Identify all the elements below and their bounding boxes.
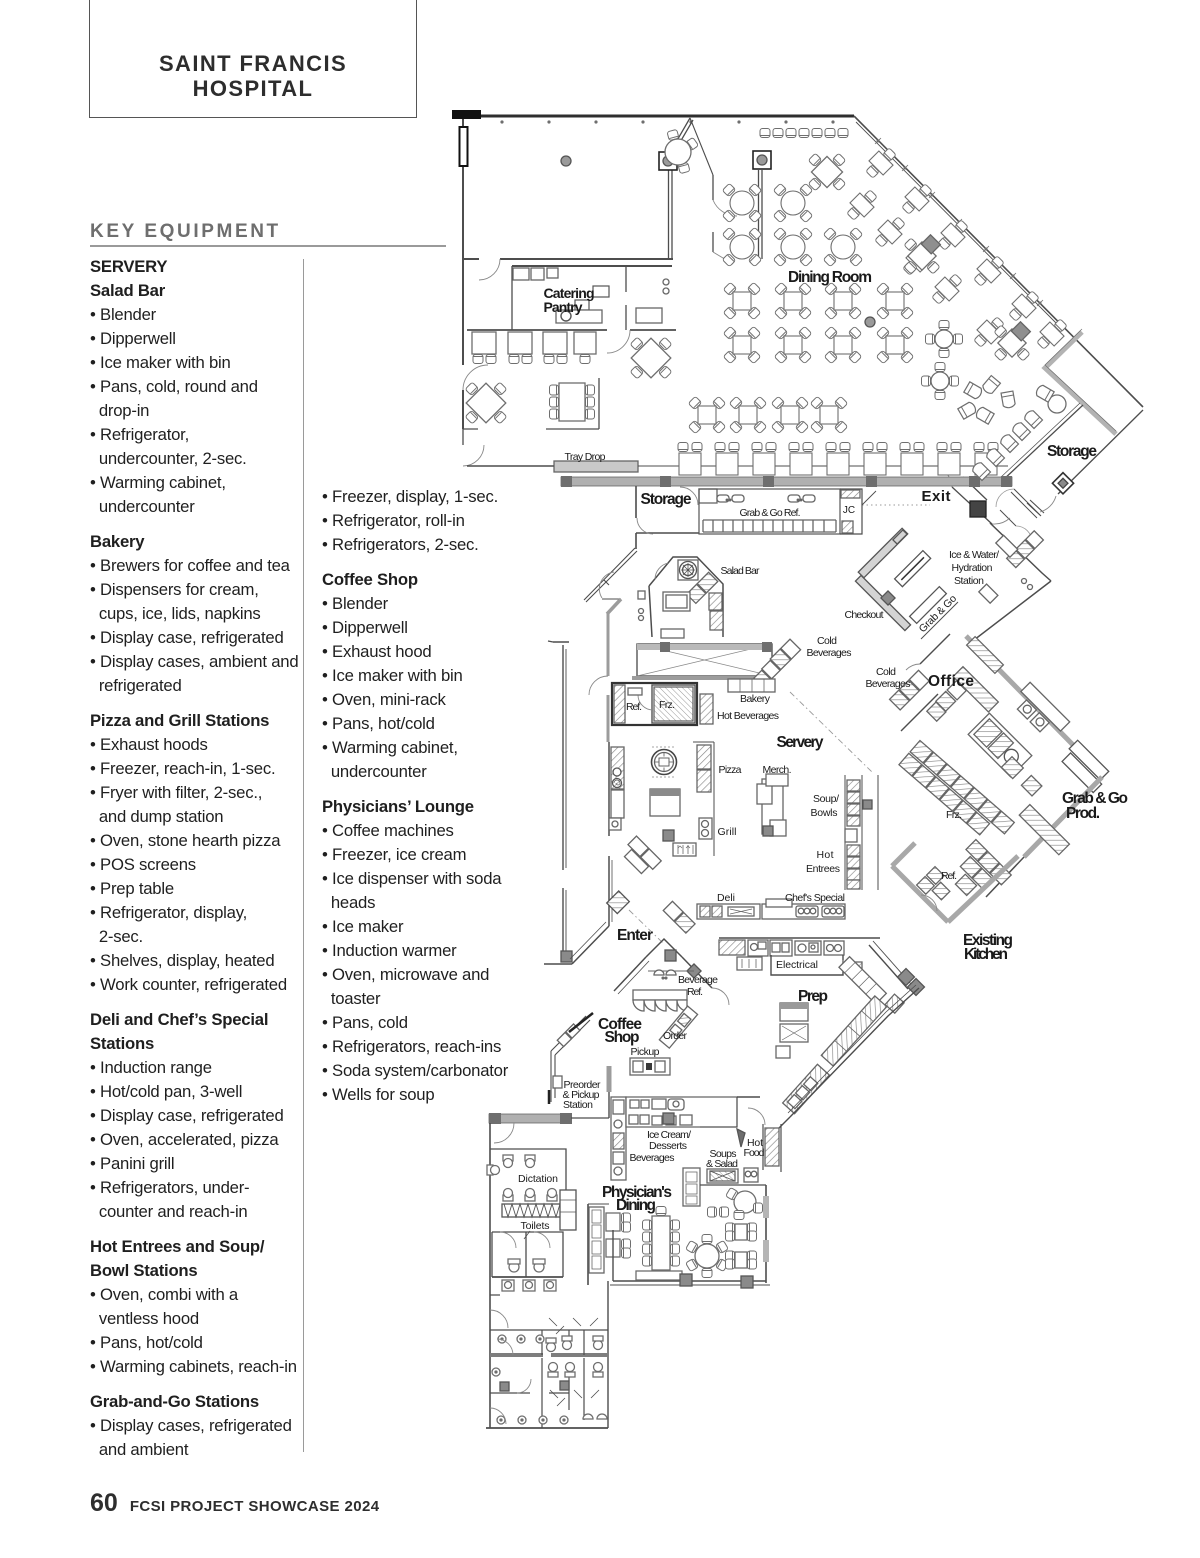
svg-text:Prep: Prep (798, 988, 828, 1005)
svg-text:Office: Office (928, 673, 974, 690)
svg-text:Shop: Shop (605, 1029, 640, 1046)
svg-text:Food: Food (744, 1147, 765, 1159)
svg-text:Ref.: Ref. (687, 986, 703, 998)
svg-text:Storage: Storage (1047, 443, 1097, 460)
svg-text:Entrees: Entrees (806, 863, 840, 875)
svg-text:Beverages: Beverages (807, 647, 852, 659)
svg-text:Tray Drop: Tray Drop (565, 451, 606, 463)
svg-text:Cold: Cold (817, 635, 837, 647)
svg-text:Storage: Storage (641, 491, 692, 508)
svg-text:Toilets: Toilets (521, 1220, 550, 1232)
svg-text:Beverages: Beverages (630, 1152, 675, 1164)
svg-text:Exit: Exit (922, 488, 951, 505)
svg-text:Bowls: Bowls (811, 807, 838, 819)
svg-text:Enter: Enter (617, 927, 653, 944)
svg-text:Electrical: Electrical (776, 959, 818, 971)
svg-text:Hydration: Hydration (952, 562, 993, 574)
svg-text:& Salad: & Salad (706, 1158, 738, 1170)
svg-text:Bakery: Bakery (740, 693, 771, 705)
svg-text:Servery: Servery (777, 734, 824, 751)
svg-text:JC: JC (843, 505, 855, 516)
svg-text:Ref.: Ref. (626, 701, 642, 713)
svg-text:Prod.: Prod. (1066, 805, 1100, 822)
svg-text:Beverages: Beverages (866, 678, 911, 690)
svg-text:Chef's Special: Chef's Special (785, 892, 845, 904)
svg-text:Order: Order (663, 1030, 688, 1042)
svg-text:Checkout: Checkout (845, 609, 884, 621)
svg-text:Station: Station (563, 1099, 593, 1111)
svg-text:Frz.: Frz. (659, 699, 675, 711)
svg-text:Grill: Grill (718, 826, 737, 838)
svg-text:Frz.: Frz. (946, 809, 962, 821)
svg-text:Merch.: Merch. (763, 764, 792, 776)
svg-text:Soup/: Soup/ (813, 793, 839, 805)
svg-text:Hot: Hot (817, 849, 834, 861)
svg-text:Salad Bar: Salad Bar (721, 565, 761, 577)
svg-text:Cold: Cold (876, 666, 896, 678)
svg-text:Pizza: Pizza (719, 764, 742, 776)
svg-text:Dining: Dining (616, 1197, 656, 1214)
svg-text:Desserts: Desserts (649, 1140, 687, 1152)
svg-text:Beverage: Beverage (678, 974, 718, 986)
svg-text:Deli: Deli (717, 892, 735, 904)
svg-text:Pickup: Pickup (631, 1046, 660, 1058)
svg-text:Hot Beverages: Hot Beverages (717, 710, 779, 722)
svg-text:Dictation: Dictation (518, 1173, 558, 1185)
svg-text:Grab & Go Ref.: Grab & Go Ref. (740, 507, 801, 519)
svg-text:Ice & Water/: Ice & Water/ (949, 549, 999, 561)
svg-text:Pantry: Pantry (544, 299, 583, 315)
svg-text:Kitchen: Kitchen (964, 946, 1008, 963)
svg-text:Dining Room: Dining Room (788, 269, 872, 286)
svg-text:Ref.: Ref. (941, 870, 957, 882)
svg-text:Station: Station (954, 575, 984, 587)
